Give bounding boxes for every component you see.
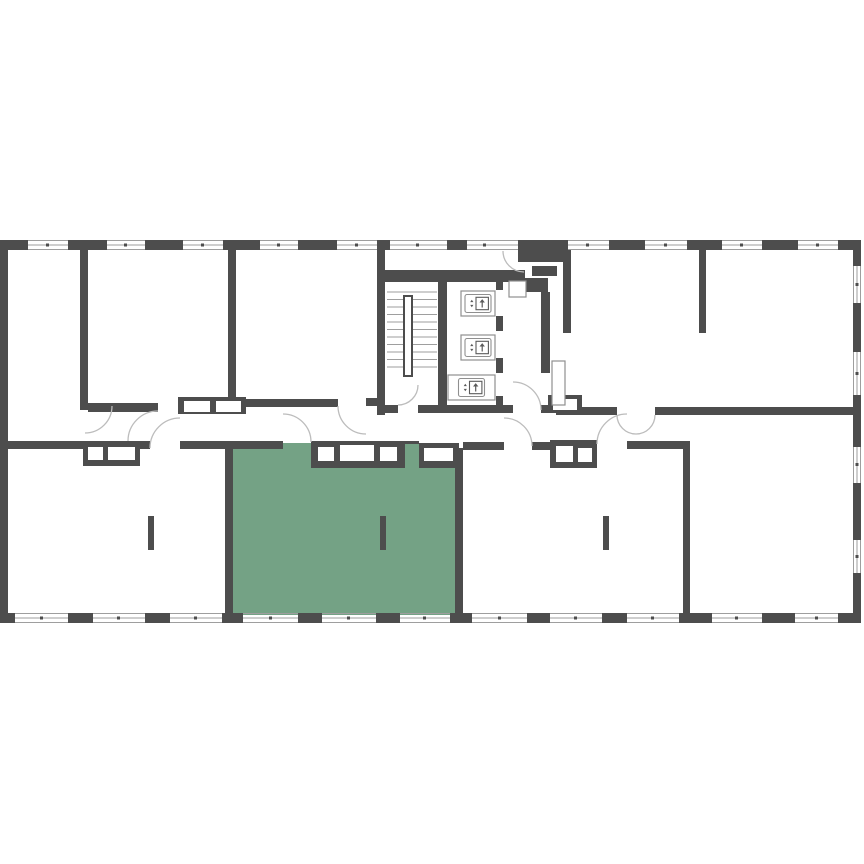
door-arc-double-right: [636, 415, 655, 434]
radiator: [380, 516, 386, 550]
elevator-bank: [448, 291, 495, 400]
door-arc-room1: [150, 418, 180, 448]
floor-plan: [0, 0, 864, 864]
radiator: [148, 516, 154, 550]
door-arc-elevator-hall: [513, 382, 541, 410]
door-arc-highlighted-unit: [283, 414, 311, 442]
floorplan-page: [0, 0, 864, 864]
stair-handrail: [404, 296, 412, 376]
door-arc-room-top: [338, 406, 366, 434]
door-arc-room2-a: [504, 418, 532, 446]
radiator: [603, 516, 609, 550]
elevator-up-icon: [465, 339, 491, 357]
highlighted-unit[interactable]: [233, 443, 455, 615]
window-strip-top: [0, 241, 861, 250]
door-arc-stairs: [398, 385, 418, 405]
elevator-1: [461, 291, 495, 316]
door-arc-corridor-mid-a: [128, 411, 158, 441]
elevator-2: [461, 335, 495, 360]
stairwell: [387, 292, 437, 376]
door-arc-double-left: [617, 415, 636, 434]
elevator-3: [448, 375, 495, 400]
elevator-up-icon: [465, 295, 491, 313]
elevator-up-icon: [459, 379, 485, 397]
shaft-niches: [83, 281, 597, 468]
